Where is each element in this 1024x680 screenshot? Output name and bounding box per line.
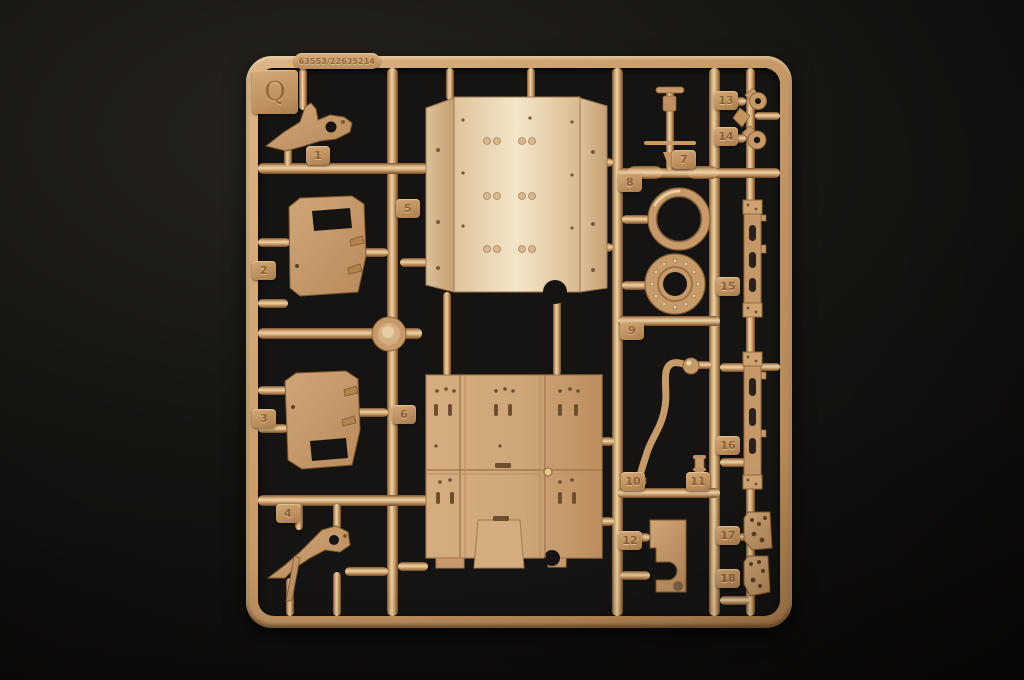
photo-of-sprue: Q 63553/22635214 1 2 3 4 5 6 7 8 9 10 11… xyxy=(0,0,1024,680)
part-14-tab: 14 xyxy=(714,127,738,146)
runner-junction-boss xyxy=(372,317,406,351)
molded-parts-layer xyxy=(0,0,1024,680)
part-3-shape xyxy=(285,371,360,469)
part-13-shape xyxy=(745,88,767,110)
part-3-tab: 3 xyxy=(252,409,276,428)
part-15-shape xyxy=(743,200,766,317)
part-18-tab: 18 xyxy=(716,569,740,588)
part-5-shape xyxy=(426,97,607,304)
part-1-tab: 1 xyxy=(306,146,330,165)
part-10-shape xyxy=(632,358,699,485)
part-4-shape xyxy=(268,526,350,602)
sprue-letter: Q xyxy=(264,77,285,107)
part-12-tab: 12 xyxy=(618,531,642,550)
part-9-shape xyxy=(645,254,705,314)
part-13-tab: 13 xyxy=(714,91,738,110)
part-11-tab: 11 xyxy=(686,472,710,491)
mold-code: 63553/22635214 xyxy=(299,57,375,66)
part-6-shape xyxy=(426,375,602,568)
part-9-tab: 9 xyxy=(620,321,644,340)
part-6-tab: 6 xyxy=(392,405,416,424)
part-12-shape xyxy=(650,520,686,592)
part-4-tab: 4 xyxy=(276,504,300,523)
part-8-shape xyxy=(648,188,710,250)
part-14-shape xyxy=(742,126,766,149)
part-16-shape xyxy=(743,352,766,489)
part-17-shape xyxy=(744,512,772,550)
part-18-shape xyxy=(744,556,770,596)
part-7-tab: 7 xyxy=(672,150,696,169)
sprue-gate-lozenge xyxy=(733,108,750,127)
part-15-tab: 15 xyxy=(716,277,740,296)
part-5-tab: 5 xyxy=(396,199,420,218)
part-8-tab: 8 xyxy=(618,173,642,192)
part-16-tab: 16 xyxy=(716,436,740,455)
part-2-shape xyxy=(289,196,366,296)
part-17-tab: 17 xyxy=(716,526,740,545)
part-2-tab: 2 xyxy=(252,261,276,280)
mold-code-plate: 63553/22635214 xyxy=(294,53,380,69)
sprue-letter-tab: Q xyxy=(252,70,298,114)
part-10-tab: 10 xyxy=(621,472,645,491)
